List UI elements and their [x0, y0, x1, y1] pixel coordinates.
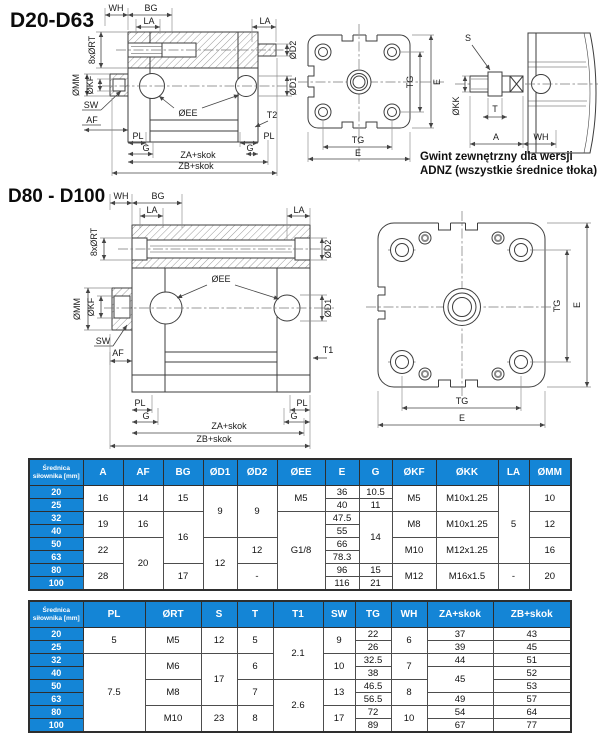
- table-cell: 8: [391, 680, 427, 706]
- dimension-tables: Średnica siłownika [mm]AAFBGØD1ØD2ØEEEGØ…: [28, 458, 570, 733]
- table-cell: 14: [359, 512, 392, 564]
- adnz-caption-line2: ADNZ (wszystkie średnice tłoka): [420, 164, 600, 178]
- table-cell: 116: [325, 577, 359, 591]
- table-cell: 23: [201, 706, 237, 733]
- table-cell: 12: [237, 538, 277, 564]
- table-cell: 52: [493, 667, 571, 680]
- dim-label-kf: ØKF: [85, 75, 95, 94]
- table-cell: M8: [145, 680, 201, 706]
- dim-label-mm: ØMM: [72, 298, 82, 320]
- dim-label-e: E: [355, 148, 361, 158]
- table-cell: 2.1: [273, 628, 323, 680]
- column-header: A: [83, 459, 123, 486]
- d20-d63-side-view: ØEE WH BG LA LA 8xØRT ØD2 ØD1 ØMM: [71, 3, 298, 176]
- dim-label-sw: SW: [84, 100, 99, 110]
- table-cell: 15: [163, 486, 203, 512]
- table-cell: 53: [493, 680, 571, 693]
- row-header-title: Średnica siłownika [mm]: [29, 601, 83, 628]
- column-header: T1: [273, 601, 323, 628]
- table-cell: 32.5: [355, 654, 391, 667]
- dim-label-la: LA: [143, 16, 154, 26]
- row-header: 25: [29, 641, 83, 654]
- table-cell: 12: [201, 628, 237, 654]
- table-cell: M8: [392, 512, 436, 538]
- column-header: ØD2: [237, 459, 277, 486]
- dim-label-rt: 8xØRT: [89, 227, 99, 256]
- row-header: 50: [29, 538, 83, 551]
- column-header: ØMM: [529, 459, 571, 486]
- dim-label-d2: ØD2: [288, 41, 298, 60]
- dim-label-tg: TG: [352, 135, 365, 145]
- dim-label-t1: T1: [323, 345, 334, 355]
- table-cell: 78.3: [325, 551, 359, 564]
- table-cell: M12x1.25: [436, 538, 498, 564]
- dim-label-s: S: [465, 33, 471, 43]
- table-cell: 19: [83, 512, 123, 538]
- dim-label-zb: ZB+skok: [178, 161, 214, 171]
- dim-label-za: ZA+skok: [211, 421, 247, 431]
- table-cell: 16: [123, 512, 163, 538]
- table-cell: 12: [203, 538, 237, 591]
- dim-label-t2: T2: [267, 110, 278, 120]
- dim-label-la: LA: [259, 16, 270, 26]
- column-header: E: [325, 459, 359, 486]
- table-cell: 66: [325, 538, 359, 551]
- dim-label-g: G: [290, 411, 297, 421]
- table-cell: 64: [493, 706, 571, 719]
- row-header-title: Średnica siłownika [mm]: [29, 459, 83, 486]
- row-header: 32: [29, 512, 83, 525]
- adnz-rod-detail: S ØKK T A WH: [451, 33, 598, 153]
- column-header: ØKF: [392, 459, 436, 486]
- dim-label-e: E: [432, 79, 442, 85]
- column-header: LA: [498, 459, 529, 486]
- dim-label-bg: BG: [151, 191, 164, 201]
- table-row: 205M51252.192263743: [29, 628, 571, 641]
- dim-label-la: LA: [146, 205, 157, 215]
- dim-label-sw: SW: [96, 336, 111, 346]
- table-cell: 43: [493, 628, 571, 641]
- table-cell: 45: [493, 641, 571, 654]
- table-cell: 51: [493, 654, 571, 667]
- table-cell: 89: [355, 719, 391, 733]
- table-cell: 44: [427, 654, 493, 667]
- dim-label-d1: ØD1: [288, 77, 298, 96]
- column-header: TG: [355, 601, 391, 628]
- table-cell: 26: [355, 641, 391, 654]
- dim-label-e: E: [572, 302, 582, 308]
- table-cell: M10: [145, 706, 201, 733]
- table-cell: 7.5: [83, 654, 145, 733]
- table-cell: 10: [391, 706, 427, 733]
- table-cell: 57: [493, 693, 571, 706]
- table-cell: M5: [277, 486, 325, 512]
- column-header: ZB+skok: [493, 601, 571, 628]
- table-cell: 46.5: [355, 680, 391, 693]
- dim-label-wh: WH: [534, 132, 549, 142]
- row-header: 40: [29, 667, 83, 680]
- table-cell: 15: [359, 564, 392, 577]
- table-cell: 21: [359, 577, 392, 591]
- table-cell: 5: [83, 628, 145, 654]
- table-cell: 39: [427, 641, 493, 654]
- section-title-d80-d100: D80 - D100: [8, 186, 105, 207]
- row-header: 40: [29, 525, 83, 538]
- dim-label-pl: PL: [134, 398, 145, 408]
- row-header: 25: [29, 499, 83, 512]
- table-cell: 38: [355, 667, 391, 680]
- table-cell: 8: [237, 706, 273, 733]
- table-cell: 10: [529, 486, 571, 512]
- dimensions-table-2: Średnica siłownika [mm]PLØRTSTT1SWTGWHZA…: [28, 600, 572, 733]
- section-title-d20-d63: D20-D63: [10, 9, 94, 32]
- column-header: ØRT: [145, 601, 201, 628]
- dim-label-bg: BG: [144, 3, 157, 13]
- dim-label-mm: ØMM: [71, 74, 81, 96]
- dim-label-t: T: [492, 104, 498, 114]
- column-header: AF: [123, 459, 163, 486]
- adnz-caption: Gwint zewnętrzny dla wersji ADNZ (wszyst…: [420, 150, 600, 178]
- dim-label-wh: WH: [114, 191, 129, 201]
- table-cell: -: [237, 564, 277, 591]
- dim-label-g: G: [142, 411, 149, 421]
- table-cell: M12: [392, 564, 436, 591]
- dim-label-g: G: [142, 143, 149, 153]
- dim-label-rt: 8xØRT: [87, 35, 97, 64]
- row-header: 80: [29, 706, 83, 719]
- table-cell: 47.5: [325, 512, 359, 525]
- table-cell: 22: [83, 538, 123, 564]
- row-header: 80: [29, 564, 83, 577]
- table-cell: 72: [355, 706, 391, 719]
- table-cell: 10.5: [359, 486, 392, 499]
- row-header: 63: [29, 551, 83, 564]
- table-cell: 28: [83, 564, 123, 591]
- table-cell: 67: [427, 719, 493, 733]
- column-header: T: [237, 601, 273, 628]
- dim-label-ee: ØEE: [211, 274, 230, 284]
- dim-label-ee: ØEE: [178, 108, 197, 118]
- dim-label-kf: ØKF: [86, 297, 96, 316]
- table-cell: 16: [83, 486, 123, 512]
- d80-d100-side-view: ØEE WH BG LA LA 8xØRT ØD2 ØD1 T1: [72, 191, 334, 449]
- table-cell: 37: [427, 628, 493, 641]
- table-cell: 5: [237, 628, 273, 654]
- row-header: 32: [29, 654, 83, 667]
- row-header: 20: [29, 628, 83, 641]
- table-cell: 56.5: [355, 693, 391, 706]
- table-cell: 17: [323, 706, 355, 733]
- table-cell: 77: [493, 719, 571, 733]
- column-header: G: [359, 459, 392, 486]
- table-cell: 12: [529, 512, 571, 538]
- table-cell: 16: [163, 512, 203, 564]
- dim-label-af: AF: [86, 115, 98, 125]
- table-cell: 6: [391, 628, 427, 654]
- d20-d63-face-view: TG E TG E: [298, 24, 444, 162]
- column-header: ØD1: [203, 459, 237, 486]
- table-cell: 9: [323, 628, 355, 654]
- table-cell: M5: [392, 486, 436, 512]
- table-cell: M10x1.25: [436, 486, 498, 512]
- table-cell: 20: [529, 564, 571, 591]
- dim-label-d1: ØD1: [323, 299, 333, 318]
- table-cell: 2.6: [273, 680, 323, 733]
- row-header: 50: [29, 680, 83, 693]
- table-cell: 9: [237, 486, 277, 538]
- d80-d100-face-view: TG E TG E: [366, 211, 591, 428]
- column-header: WH: [391, 601, 427, 628]
- dim-label-e: E: [459, 413, 465, 423]
- column-header: ZA+skok: [427, 601, 493, 628]
- table-row: 32191616G1/847.514M8M10x1.2512: [29, 512, 571, 525]
- dim-label-kk: ØKK: [451, 96, 461, 115]
- table-cell: 55: [325, 525, 359, 538]
- dim-label-pl: PL: [263, 131, 274, 141]
- table-cell: G1/8: [277, 512, 325, 591]
- dim-label-zb: ZB+skok: [196, 434, 232, 444]
- table-cell: 10: [323, 654, 355, 680]
- technical-drawings: D20-D63 ØEE WH BG LA: [0, 0, 600, 455]
- table-cell: 22: [355, 628, 391, 641]
- table-cell: 40: [325, 499, 359, 512]
- table-cell: M10x1.25: [436, 512, 498, 538]
- dim-label-tg: TG: [552, 300, 562, 313]
- table-cell: 14: [123, 486, 163, 512]
- table-cell: 7: [391, 654, 427, 680]
- table-cell: 54: [427, 706, 493, 719]
- table-cell: 17: [163, 564, 203, 591]
- column-header: ØKK: [436, 459, 498, 486]
- table-cell: M6: [145, 654, 201, 680]
- dimensions-table-1: Średnica siłownika [mm]AAFBGØD1ØD2ØEEEGØ…: [28, 458, 572, 591]
- table-cell: 45: [427, 667, 493, 693]
- column-header: BG: [163, 459, 203, 486]
- row-header: 100: [29, 719, 83, 733]
- table-cell: -: [498, 564, 529, 591]
- table-cell: 16: [529, 538, 571, 564]
- table-cell: M16x1.5: [436, 564, 498, 591]
- column-header: S: [201, 601, 237, 628]
- table-cell: 36: [325, 486, 359, 499]
- dim-label-pl: PL: [132, 131, 143, 141]
- table-cell: M10: [392, 538, 436, 564]
- dim-label-g: G: [246, 143, 253, 153]
- column-header: SW: [323, 601, 355, 628]
- table-row: 2016141599M53610.5M5M10x1.25510: [29, 486, 571, 499]
- catalog-page: D20-D63 ØEE WH BG LA: [0, 0, 600, 733]
- adnz-caption-line1: Gwint zewnętrzny dla wersji: [420, 150, 600, 164]
- dim-label-tg: TG: [405, 76, 415, 89]
- dim-label-la: LA: [293, 205, 304, 215]
- dim-label-pl: PL: [296, 398, 307, 408]
- table-cell: 49: [427, 693, 493, 706]
- table-cell: 17: [201, 654, 237, 706]
- table-cell: 13: [323, 680, 355, 706]
- table-cell: 6: [237, 654, 273, 680]
- table-cell: 7: [237, 680, 273, 706]
- row-header: 20: [29, 486, 83, 499]
- dim-label-a: A: [493, 132, 499, 142]
- dim-label-d2: ØD2: [323, 240, 333, 259]
- dim-label-za: ZA+skok: [180, 150, 216, 160]
- table-cell: 11: [359, 499, 392, 512]
- dim-label-wh: WH: [109, 3, 124, 13]
- table-cell: 5: [498, 486, 529, 564]
- column-header: ØEE: [277, 459, 325, 486]
- row-header: 63: [29, 693, 83, 706]
- table-cell: 96: [325, 564, 359, 577]
- table-cell: 9: [203, 486, 237, 538]
- column-header: PL: [83, 601, 145, 628]
- dim-label-af: AF: [112, 348, 124, 358]
- row-header: 100: [29, 577, 83, 591]
- table-cell: M5: [145, 628, 201, 654]
- table-cell: 20: [123, 538, 163, 591]
- dim-label-tg: TG: [456, 396, 469, 406]
